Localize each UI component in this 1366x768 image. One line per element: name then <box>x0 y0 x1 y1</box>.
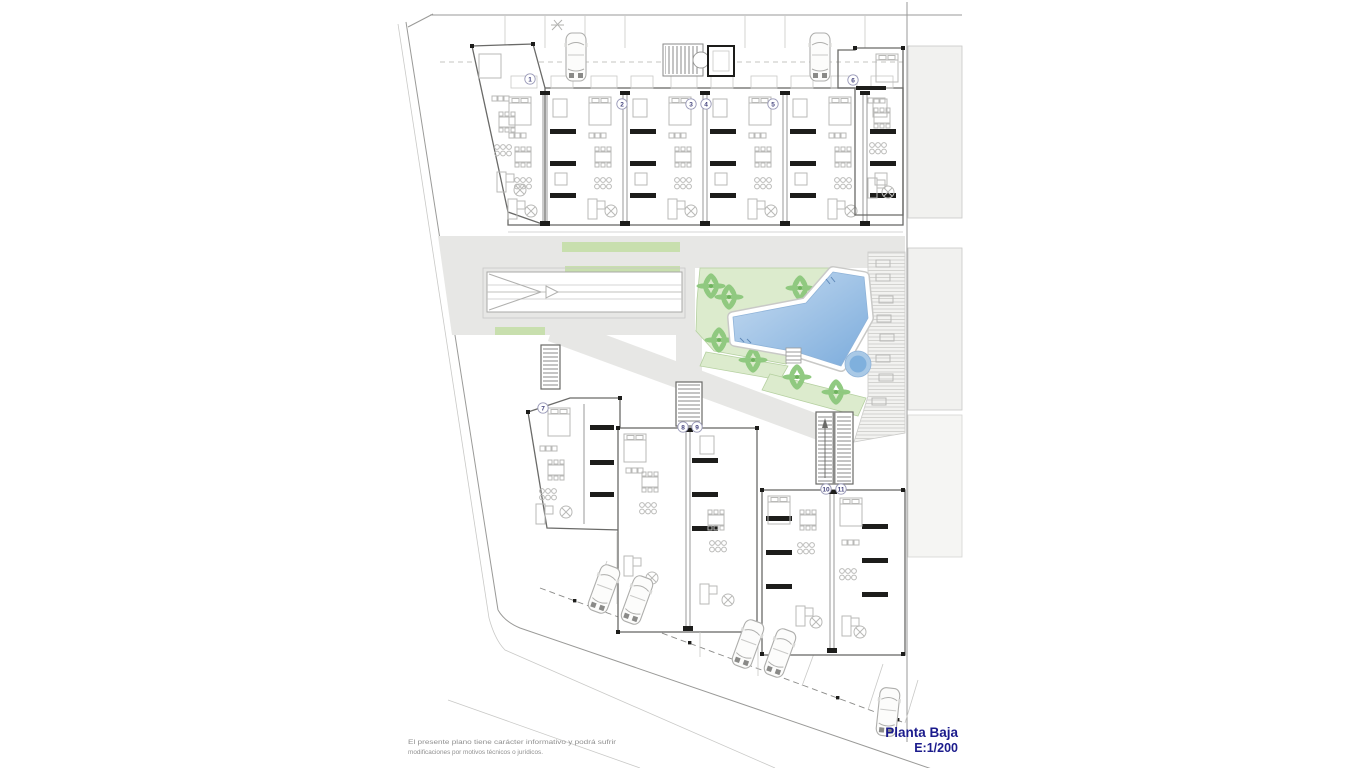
top-apartment-block <box>440 16 905 232</box>
stair-mid-center <box>676 382 702 426</box>
svg-text:3: 3 <box>689 101 693 108</box>
svg-text:8: 8 <box>681 424 685 431</box>
pool-steps <box>786 348 801 363</box>
unit-number-badge: 4 <box>701 99 711 109</box>
car-icon <box>565 33 588 81</box>
disclaimer-line-2: modificaciones por motivos técnicos o ju… <box>408 749 543 756</box>
stair-mid-left <box>541 345 560 389</box>
unit-number-badge: 9 <box>692 422 702 432</box>
svg-text:5: 5 <box>771 101 775 108</box>
unit-number-badge: 1 <box>525 74 535 84</box>
plan-scale: E:1/200 <box>914 741 958 755</box>
street-line-3 <box>448 700 640 768</box>
unit-1 <box>470 42 545 225</box>
spa <box>845 351 871 377</box>
unit-number-badge: 2 <box>617 99 627 109</box>
svg-text:10: 10 <box>822 486 830 493</box>
unit-number-badge: 3 <box>686 99 696 109</box>
car-icon <box>809 33 832 81</box>
unit-number-badge: 11 <box>836 484 846 494</box>
svg-text:1: 1 <box>528 76 532 83</box>
floor-plan-page: 1234567891011 El presente plano tiene ca… <box>0 0 1366 768</box>
svg-text:4: 4 <box>704 101 708 108</box>
unit-number-badge: 10 <box>821 484 831 494</box>
svg-text:7: 7 <box>541 405 545 412</box>
disclaimer-line-1: El presente plano tiene carácter informa… <box>408 739 617 746</box>
unit-number-badge: 8 <box>678 422 688 432</box>
unit-number-badge: 6 <box>848 75 858 85</box>
stair-double-right <box>816 412 853 484</box>
svg-text:2: 2 <box>620 101 624 108</box>
unit-number-badge: 5 <box>768 99 778 109</box>
neighbour-parcels <box>908 46 962 557</box>
garage-ramp <box>483 268 685 318</box>
tree-icon <box>551 20 564 30</box>
svg-text:6: 6 <box>851 77 855 84</box>
svg-text:11: 11 <box>838 486 845 493</box>
site-plan-drawing: 1234567891011 El presente plano tiene ca… <box>0 0 1366 768</box>
svg-text:9: 9 <box>695 424 699 431</box>
stair-core-top <box>663 44 734 76</box>
unit-number-badge: 7 <box>538 403 548 413</box>
elevator <box>708 46 734 76</box>
unit-7-block <box>526 396 622 530</box>
plan-title: Planta Baja <box>885 725 958 740</box>
